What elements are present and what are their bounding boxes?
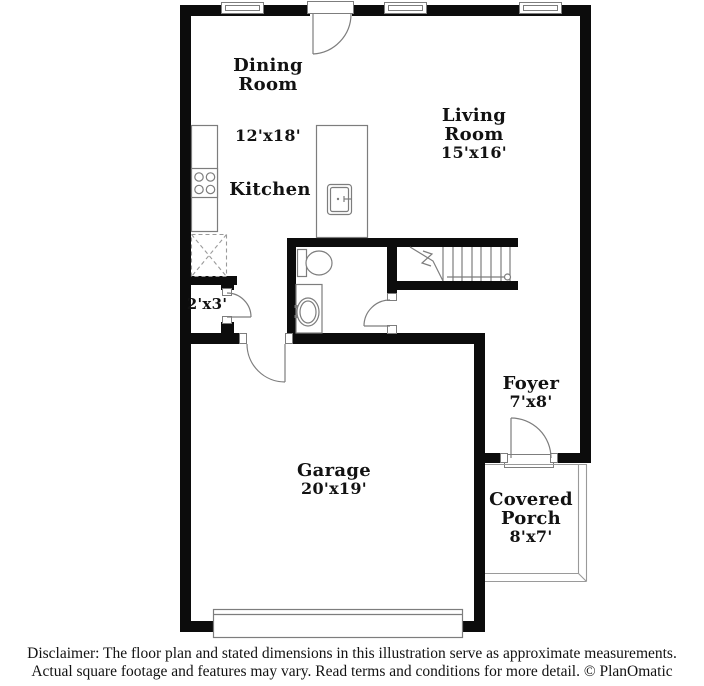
vanity-sink	[295, 285, 323, 334]
door-jamb	[222, 316, 232, 324]
window-glass	[388, 5, 423, 11]
door-jamb	[285, 333, 293, 344]
dining-room-dims: 12'x18'	[188, 127, 348, 145]
front-door-threshold	[504, 454, 554, 468]
wall-mid-right	[285, 333, 485, 344]
garage-label-block: Garage 20'x19'	[254, 461, 414, 498]
back-door-threshold	[307, 1, 354, 14]
living-room-label-block: Living Room 15'x16'	[434, 106, 514, 162]
foyer-label-block: Foyer 7'x8'	[451, 374, 611, 411]
living-room-dims: 15'x16'	[434, 144, 514, 162]
bathroom-door	[364, 300, 390, 326]
wall-bath-top	[287, 238, 518, 247]
disclaimer: Disclaimer: The floor plan and stated di…	[0, 645, 704, 681]
wall-mid-left	[180, 333, 247, 344]
disclaimer-line1: Disclaimer: The floor plan and stated di…	[0, 645, 704, 663]
garage-dims: 20'x19'	[254, 480, 414, 498]
wall-left	[180, 5, 191, 632]
dining-room-label: Dining Room	[228, 56, 308, 94]
porch-label: Covered Porch	[481, 490, 581, 528]
window-glass	[225, 5, 260, 11]
toilet	[298, 250, 333, 277]
floor-plan: Dining Room 12'x18' Kitchen Living Room …	[0, 0, 704, 686]
garage-hall-door	[247, 344, 285, 382]
wall-bath-left	[287, 238, 296, 344]
porch-label-block: Covered Porch 8'x7'	[481, 490, 581, 546]
closet-dims: 2'x3'	[180, 296, 234, 312]
window-3	[519, 2, 562, 14]
porch-dims: 8'x7'	[481, 528, 581, 546]
door-jamb	[500, 453, 508, 463]
window-2	[384, 2, 427, 14]
window-1	[221, 2, 264, 14]
back-door	[313, 14, 351, 54]
refrigerator	[192, 235, 227, 277]
door-jamb	[550, 453, 558, 463]
foyer-label: Foyer	[451, 374, 611, 393]
window-glass	[523, 5, 558, 11]
staircase	[410, 247, 511, 281]
kitchen-label: Kitchen	[190, 180, 350, 199]
disclaimer-line2: Actual square footage and features may v…	[0, 663, 704, 681]
door-jamb	[239, 333, 247, 344]
garage-label: Garage	[254, 461, 414, 480]
wall-stairs-bottom	[390, 281, 518, 290]
wall-garage-bottom	[180, 621, 485, 632]
front-door	[511, 418, 551, 458]
door-jamb	[387, 293, 397, 301]
door-jamb	[387, 325, 397, 334]
foyer-dims: 7'x8'	[451, 393, 611, 411]
living-room-label: Living Room	[434, 106, 514, 144]
